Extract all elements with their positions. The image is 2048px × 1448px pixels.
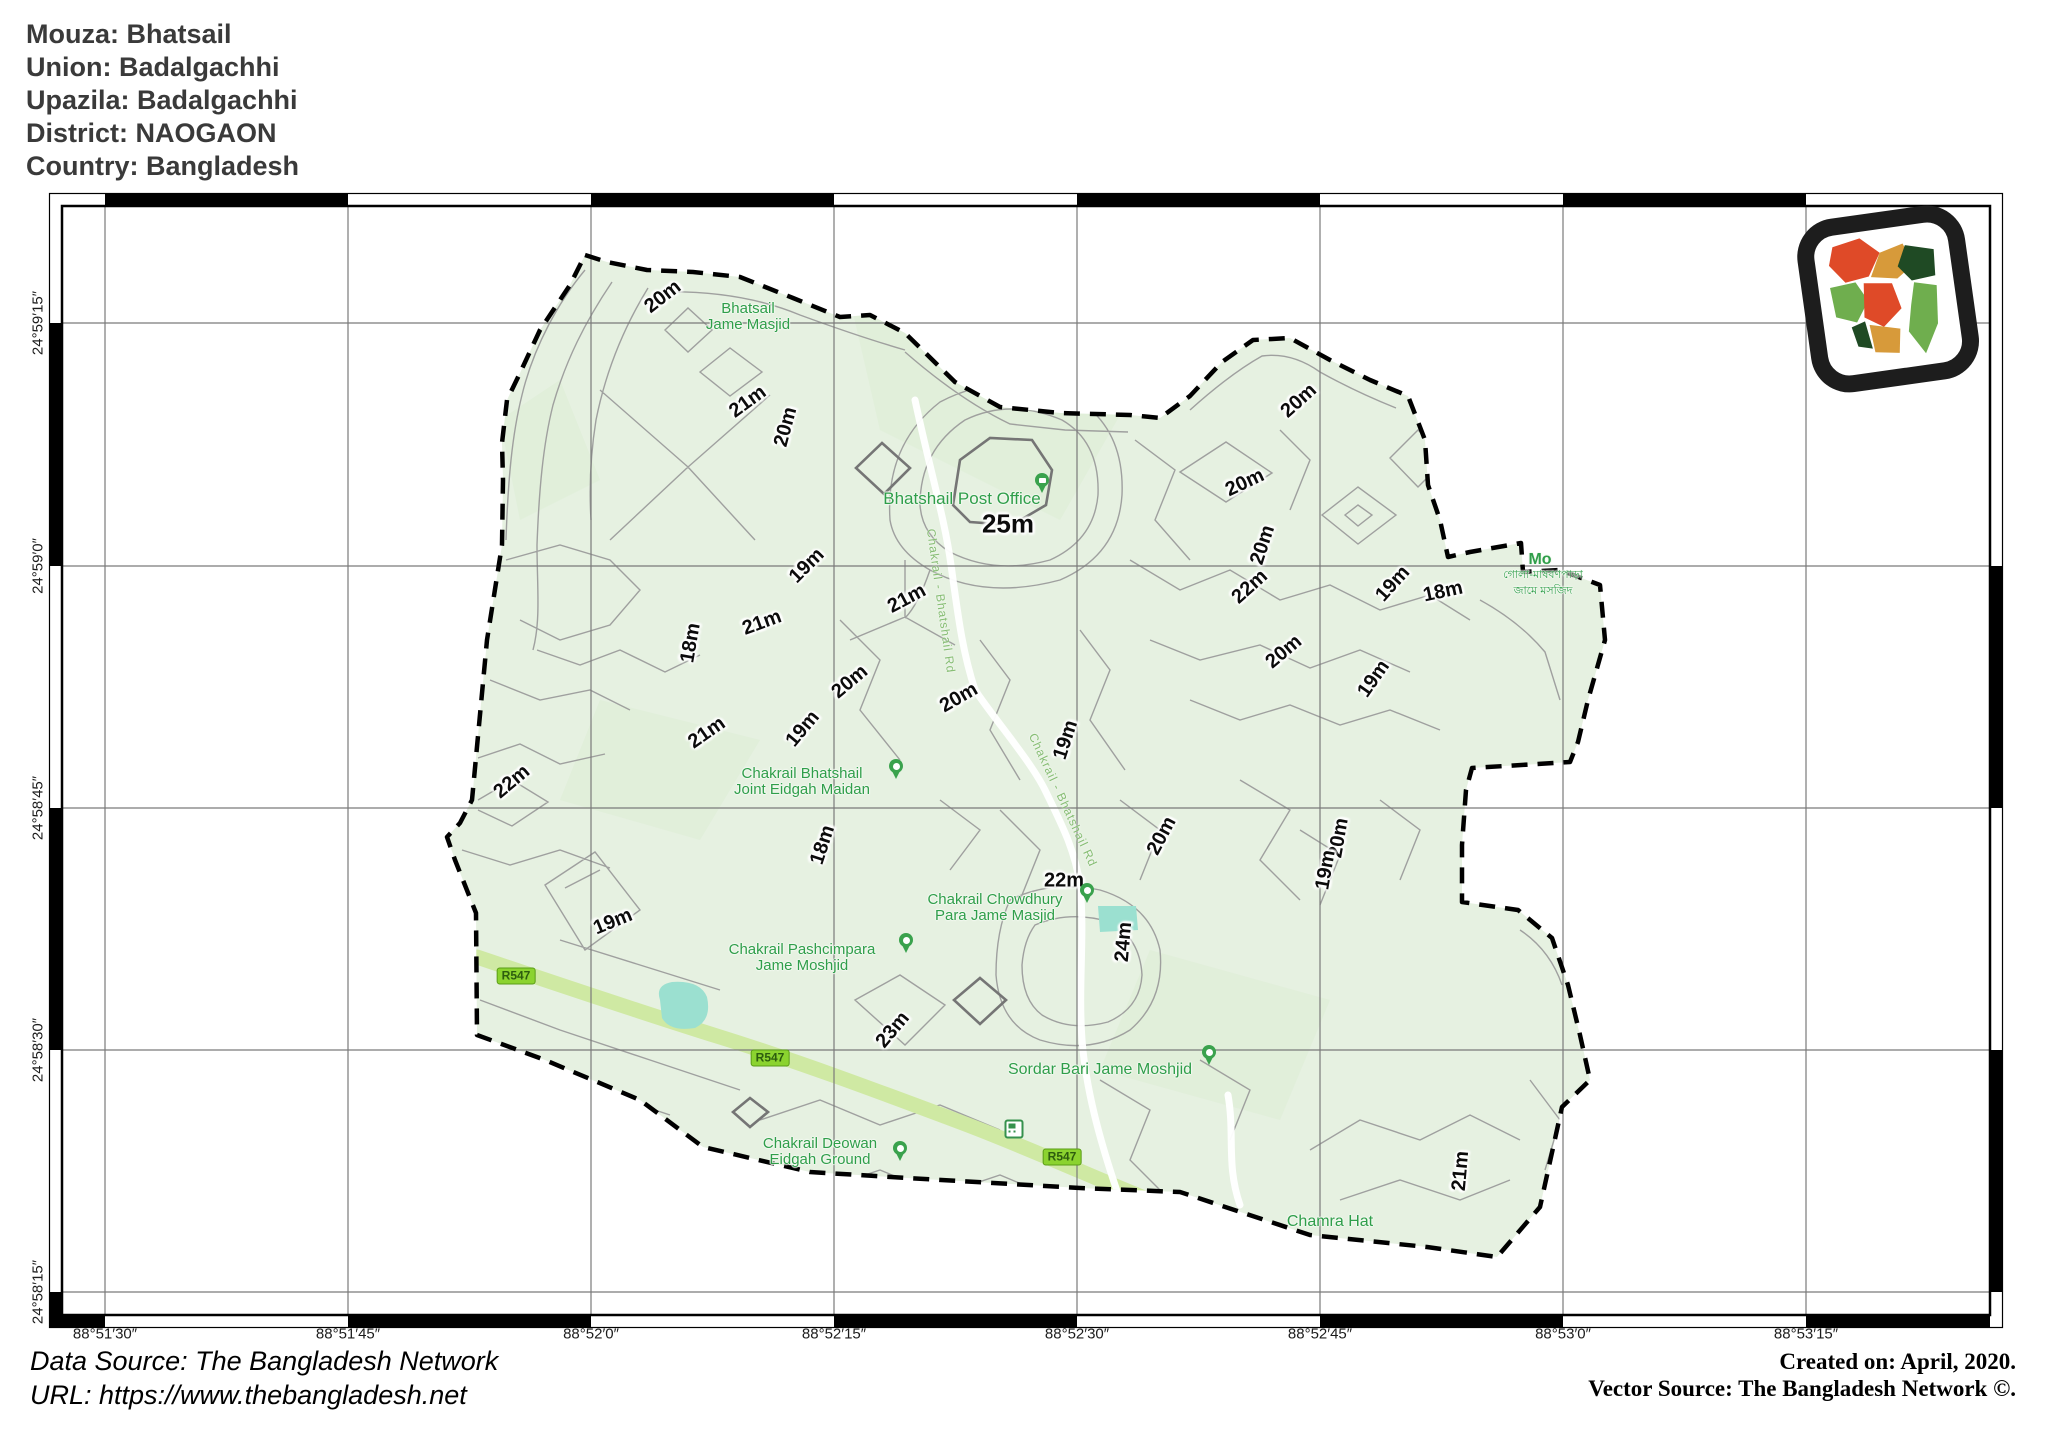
- vector-source-credit: Vector Source: The Bangladesh Network ©.: [1588, 1375, 2016, 1402]
- credits-left: Data Source: The Bangladesh Network URL:…: [30, 1344, 498, 1412]
- upazila-title: Upazila: Badalgachhi: [26, 84, 299, 117]
- data-source-credit: Data Source: The Bangladesh Network: [30, 1344, 498, 1378]
- bangladesh-map-logo: [1802, 210, 1975, 388]
- map-title-block: Mouza: Bhatsail Union: Badalgachhi Upazi…: [26, 18, 299, 183]
- map-page: 20m21m20m20m20m25m20m22m19m18m19m21m18m2…: [0, 0, 2048, 1448]
- mouza-map: [0, 0, 2048, 1448]
- created-on-credit: Created on: April, 2020.: [1588, 1348, 2016, 1375]
- url-credit: URL: https://www.thebangladesh.net: [30, 1378, 498, 1412]
- credits-right: Created on: April, 2020. Vector Source: …: [1588, 1348, 2016, 1402]
- union-title: Union: Badalgachhi: [26, 51, 299, 84]
- country-title: Country: Bangladesh: [26, 150, 299, 183]
- mouza-title: Mouza: Bhatsail: [26, 18, 299, 51]
- district-title: District: NAOGAON: [26, 117, 299, 150]
